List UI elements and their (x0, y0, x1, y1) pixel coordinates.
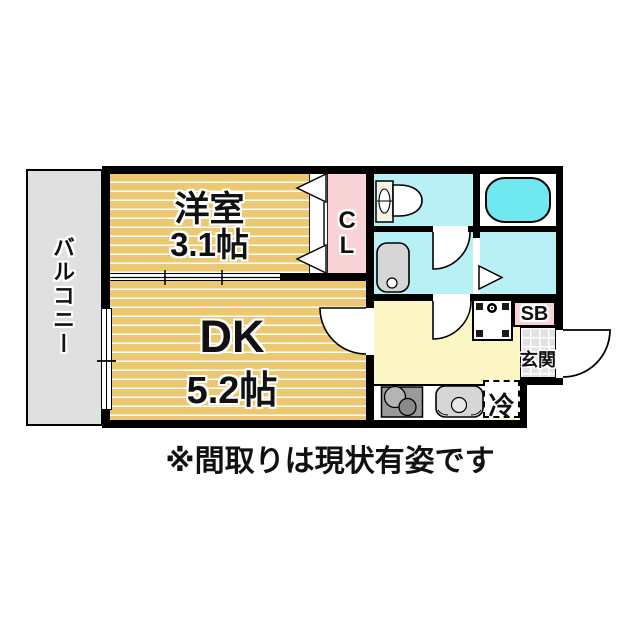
wall-segment (480, 226, 556, 232)
disclaimer-text: ※間取りは現状有姿です (10, 436, 640, 480)
wall-segment (102, 166, 563, 174)
closet-label: CL (328, 208, 366, 258)
closet-label-text: CL (339, 208, 356, 258)
wall-segment (366, 174, 374, 308)
shoe-box-label: SB (513, 303, 556, 326)
western-room-size-label: 3.1帖 (110, 218, 309, 266)
wall-segment (470, 294, 563, 301)
toilet-room-area (374, 174, 473, 226)
dk-size-label: 5.2帖 (110, 359, 354, 414)
bathroom-tub-area (480, 174, 556, 226)
entrance-door-arc (563, 330, 610, 377)
closet-door-strip (309, 174, 328, 273)
refrigerator-label: 冷 (483, 386, 520, 423)
wall-segment (102, 174, 110, 308)
entrance-label: 玄関 (516, 346, 560, 372)
wall-segment (366, 355, 374, 420)
wall-segment (374, 294, 433, 301)
dk-label: DK (110, 311, 354, 363)
wall-segment (520, 385, 527, 420)
washroom-area (374, 232, 473, 294)
wall-segment (556, 166, 563, 330)
floorplan-image: 洋室 3.1帖 DK 5.2帖 バルコニー CL SB 玄関 冷 ※間取りは現状… (0, 0, 640, 640)
balcony-label: バルコニー (50, 236, 78, 376)
wall-segment (280, 273, 366, 281)
bathroom-floor-area (480, 232, 556, 294)
wall-segment (102, 420, 527, 428)
kitchen-counter (374, 384, 483, 420)
wall-segment (374, 226, 433, 232)
room-sliding-door (110, 273, 280, 281)
wall-segment (520, 378, 563, 385)
wall-segment (473, 174, 480, 238)
